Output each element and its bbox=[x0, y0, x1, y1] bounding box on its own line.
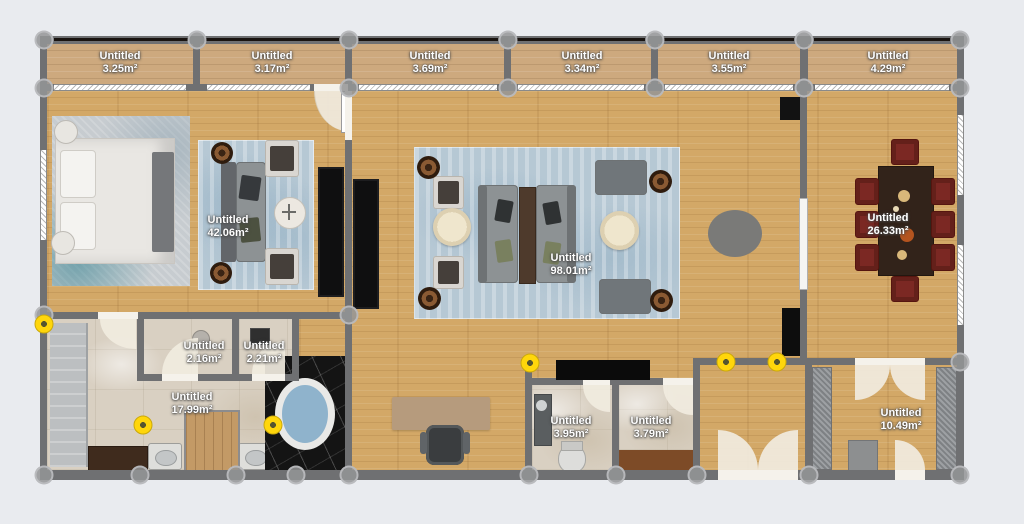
nightstand[interactable] bbox=[51, 231, 75, 255]
sliding-door[interactable] bbox=[799, 198, 808, 290]
cabinet[interactable] bbox=[780, 97, 800, 120]
room-name: Untitled bbox=[868, 212, 909, 225]
window-glass bbox=[358, 38, 498, 41]
wall[interactable] bbox=[232, 319, 239, 381]
dining-chair[interactable] bbox=[931, 244, 955, 271]
room-name: Untitled bbox=[551, 415, 592, 428]
window-glass bbox=[54, 38, 188, 41]
room-name: Untitled bbox=[100, 50, 141, 63]
room-name: Untitled bbox=[244, 340, 285, 353]
loveseat[interactable] bbox=[599, 279, 651, 314]
room-name: Untitled bbox=[709, 50, 750, 63]
window[interactable] bbox=[518, 84, 644, 91]
wall-node[interactable] bbox=[131, 466, 150, 485]
wall-node[interactable] bbox=[340, 79, 359, 98]
room-name: Untitled bbox=[881, 407, 922, 420]
utility-wood-strip bbox=[619, 450, 693, 470]
room-area: 3.95m² bbox=[551, 428, 592, 441]
wall-node[interactable] bbox=[951, 353, 970, 372]
round-rug[interactable] bbox=[708, 210, 762, 257]
wall-node[interactable] bbox=[520, 466, 539, 485]
room-name: Untitled bbox=[410, 50, 451, 63]
room-label-balcony-2: Untitled 3.17m² bbox=[252, 50, 293, 76]
wall[interactable] bbox=[137, 319, 144, 381]
room-label-living: Untitled 98.01m² bbox=[551, 252, 592, 278]
wardrobe[interactable] bbox=[50, 323, 88, 467]
table-decor bbox=[898, 190, 910, 202]
window-glass bbox=[517, 38, 645, 41]
side-table[interactable] bbox=[211, 142, 233, 164]
room-area: 3.55m² bbox=[709, 63, 750, 76]
sofa-console[interactable] bbox=[519, 187, 536, 284]
wall-node[interactable] bbox=[340, 31, 359, 50]
door-gap[interactable] bbox=[663, 378, 693, 385]
bed-bench[interactable] bbox=[152, 152, 174, 252]
window[interactable] bbox=[54, 84, 186, 91]
shower-alcove[interactable] bbox=[184, 410, 240, 474]
side-table[interactable] bbox=[210, 262, 232, 284]
room-area: 98.01m² bbox=[551, 265, 592, 278]
wall-node[interactable] bbox=[951, 79, 970, 98]
room-area: 3.69m² bbox=[410, 63, 451, 76]
door-gap[interactable] bbox=[895, 470, 925, 480]
window[interactable] bbox=[815, 84, 949, 91]
room-name: Untitled bbox=[868, 50, 909, 63]
wall-node[interactable] bbox=[188, 31, 207, 50]
double-door-gap[interactable] bbox=[718, 470, 798, 480]
bathroom-sink[interactable] bbox=[148, 443, 182, 470]
tv-unit[interactable] bbox=[353, 179, 379, 309]
window-glass bbox=[206, 38, 339, 41]
nightstand[interactable] bbox=[54, 120, 78, 144]
sofa-pillow bbox=[495, 239, 514, 263]
office-chair-arm bbox=[420, 432, 427, 454]
entry-cabinet[interactable] bbox=[848, 440, 878, 472]
room-area: 3.17m² bbox=[252, 63, 293, 76]
tv-unit[interactable] bbox=[318, 167, 344, 297]
room-area: 10.49m² bbox=[881, 420, 922, 433]
door-gap[interactable] bbox=[98, 312, 138, 319]
window[interactable] bbox=[207, 84, 310, 91]
window[interactable] bbox=[359, 84, 497, 91]
office-chair[interactable] bbox=[426, 425, 464, 465]
sofa-pillow bbox=[238, 175, 261, 202]
dining-chair[interactable] bbox=[855, 178, 879, 205]
room-label-entry: Untitled 10.49m² bbox=[881, 407, 922, 433]
pouf[interactable] bbox=[418, 287, 441, 310]
toilet-tank bbox=[561, 441, 583, 451]
window[interactable] bbox=[957, 115, 964, 195]
room-name: Untitled bbox=[184, 340, 225, 353]
entry-closet[interactable] bbox=[936, 367, 957, 470]
wall-node[interactable] bbox=[800, 466, 819, 485]
wall-bathroom-top[interactable] bbox=[40, 312, 345, 319]
opening-marker[interactable] bbox=[717, 353, 736, 372]
room-label-toilet: Untitled 3.95m² bbox=[551, 415, 592, 441]
room-label-balcony-4: Untitled 3.34m² bbox=[562, 50, 603, 76]
wall-node[interactable] bbox=[499, 79, 518, 98]
pouf[interactable] bbox=[649, 170, 672, 193]
window-glass bbox=[664, 38, 794, 41]
cabinet[interactable] bbox=[782, 308, 800, 356]
room-area: 17.99m² bbox=[172, 404, 213, 417]
room-label-bathroom: Untitled 17.99m² bbox=[172, 391, 213, 417]
dining-chair[interactable] bbox=[931, 211, 955, 238]
dining-chair[interactable] bbox=[931, 178, 955, 205]
room-label-balcony-1: Untitled 3.25m² bbox=[100, 50, 141, 76]
opening-marker[interactable] bbox=[768, 353, 787, 372]
dining-chair[interactable] bbox=[891, 139, 919, 165]
room-name: Untitled bbox=[562, 50, 603, 63]
room-name: Untitled bbox=[208, 214, 249, 227]
wall-outer-bottom[interactable] bbox=[40, 470, 964, 480]
room-label-utility: Untitled 3.79m² bbox=[631, 415, 672, 441]
lamp-icon bbox=[282, 211, 296, 213]
room-label-wc-2: Untitled 2.21m² bbox=[244, 340, 285, 366]
sofa-back bbox=[478, 185, 487, 283]
bathtub[interactable] bbox=[275, 378, 335, 450]
wall-node[interactable] bbox=[340, 466, 359, 485]
doorway[interactable] bbox=[345, 91, 352, 140]
window-glass bbox=[814, 38, 950, 41]
wall-node[interactable] bbox=[35, 79, 54, 98]
armchair[interactable] bbox=[433, 176, 464, 209]
opening-marker[interactable] bbox=[134, 416, 153, 435]
room-name: Untitled bbox=[631, 415, 672, 428]
dining-chair[interactable] bbox=[855, 244, 879, 271]
room-area: 3.79m² bbox=[631, 428, 672, 441]
opening-marker[interactable] bbox=[35, 315, 54, 334]
wall-node[interactable] bbox=[951, 31, 970, 50]
wall-node[interactable] bbox=[227, 466, 246, 485]
room-area: 42.06m² bbox=[208, 227, 249, 240]
room-name: Untitled bbox=[172, 391, 213, 404]
armchair[interactable] bbox=[265, 140, 299, 177]
wall-outer-left[interactable] bbox=[40, 36, 47, 480]
wall-entry-left[interactable] bbox=[805, 358, 812, 470]
coffee-table[interactable] bbox=[433, 208, 471, 246]
toilet-counter-sink bbox=[536, 400, 547, 411]
armchair[interactable] bbox=[265, 248, 299, 285]
entry-closet[interactable] bbox=[812, 367, 832, 470]
wall-node[interactable] bbox=[287, 466, 306, 485]
double-door-gap[interactable] bbox=[855, 358, 925, 365]
room-name: Untitled bbox=[551, 252, 592, 265]
room-area: 2.21m² bbox=[244, 353, 285, 366]
hall-cabinet[interactable] bbox=[556, 360, 650, 380]
room-label-balcony-5: Untitled 3.55m² bbox=[709, 50, 750, 76]
dining-chair[interactable] bbox=[891, 276, 919, 302]
wall-node[interactable] bbox=[607, 466, 626, 485]
wall-node[interactable] bbox=[688, 466, 707, 485]
loveseat[interactable] bbox=[595, 160, 647, 195]
wall-node[interactable] bbox=[499, 31, 518, 50]
room-area: 4.29m² bbox=[868, 63, 909, 76]
wall-hallway-left[interactable] bbox=[693, 358, 700, 470]
lamp-table[interactable] bbox=[274, 197, 306, 229]
room-label-balcony-6: Untitled 4.29m² bbox=[868, 50, 909, 76]
wall-node[interactable] bbox=[795, 31, 814, 50]
table-decor bbox=[897, 250, 907, 260]
wall-node[interactable] bbox=[951, 466, 970, 485]
opening-marker[interactable] bbox=[264, 416, 283, 435]
room-area: 2.16m² bbox=[184, 353, 225, 366]
wall-node[interactable] bbox=[795, 79, 814, 98]
wall-node[interactable] bbox=[35, 31, 54, 50]
bed-pillow bbox=[60, 150, 96, 198]
door-gap[interactable] bbox=[162, 374, 198, 381]
opening-marker[interactable] bbox=[521, 354, 540, 373]
coffee-table[interactable] bbox=[600, 211, 639, 250]
pouf[interactable] bbox=[417, 156, 440, 179]
window[interactable] bbox=[40, 150, 47, 240]
window[interactable] bbox=[665, 84, 793, 91]
door-gap[interactable] bbox=[252, 374, 285, 381]
room-label-dining: Untitled 26.33m² bbox=[868, 212, 909, 238]
floorplan-canvas[interactable]: Untitled 3.25m² Untitled 3.17m² Untitled… bbox=[0, 0, 1024, 524]
room-label-balcony-3: Untitled 3.69m² bbox=[410, 50, 451, 76]
room-name: Untitled bbox=[252, 50, 293, 63]
wall-node[interactable] bbox=[646, 79, 665, 98]
office-chair-arm bbox=[463, 432, 470, 454]
wall-node[interactable] bbox=[340, 306, 359, 325]
pouf[interactable] bbox=[650, 289, 673, 312]
wall-node[interactable] bbox=[646, 31, 665, 50]
wall-hallway-top[interactable] bbox=[693, 358, 807, 365]
room-area: 3.25m² bbox=[100, 63, 141, 76]
room-label-wc-1: Untitled 2.16m² bbox=[184, 340, 225, 366]
room-area: 26.33m² bbox=[868, 225, 909, 238]
wall-entry-top[interactable] bbox=[807, 358, 855, 365]
room-area: 3.34m² bbox=[562, 63, 603, 76]
wall[interactable] bbox=[292, 319, 299, 381]
wall-node[interactable] bbox=[35, 466, 54, 485]
room-label-bedroom: Untitled 42.06m² bbox=[208, 214, 249, 240]
bedroom-sofa-back[interactable] bbox=[221, 162, 236, 262]
armchair[interactable] bbox=[433, 256, 464, 289]
window[interactable] bbox=[957, 245, 964, 325]
wall[interactable] bbox=[612, 385, 619, 470]
